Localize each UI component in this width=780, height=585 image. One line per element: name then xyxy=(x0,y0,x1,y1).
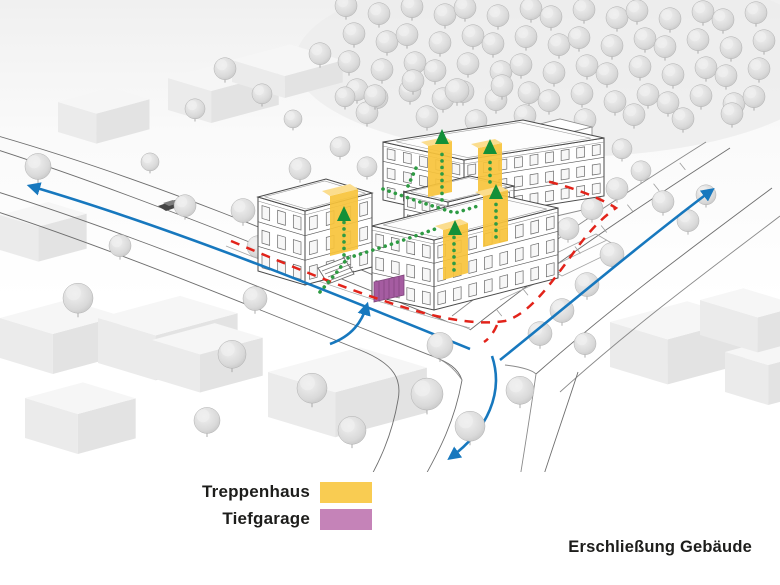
site-plan-illustration xyxy=(0,0,780,585)
garage-entry-arrow xyxy=(330,305,367,344)
tiefgarage-color-swatch xyxy=(320,509,372,530)
bottom-margin xyxy=(0,472,780,585)
legend: Treppenhaus Tiefgarage xyxy=(150,481,372,535)
legend-label: Treppenhaus xyxy=(202,482,310,502)
legend-label: Tiefgarage xyxy=(222,509,310,529)
legend-item-treppenhaus: Treppenhaus xyxy=(150,481,372,503)
legend-item-tiefgarage: Tiefgarage xyxy=(150,508,372,530)
site-access-diagram: Treppenhaus Tiefgarage Erschließung Gebä… xyxy=(0,0,780,585)
treppenhaus-color-swatch xyxy=(320,482,372,503)
diagram-title: Erschließung Gebäude xyxy=(568,538,752,557)
